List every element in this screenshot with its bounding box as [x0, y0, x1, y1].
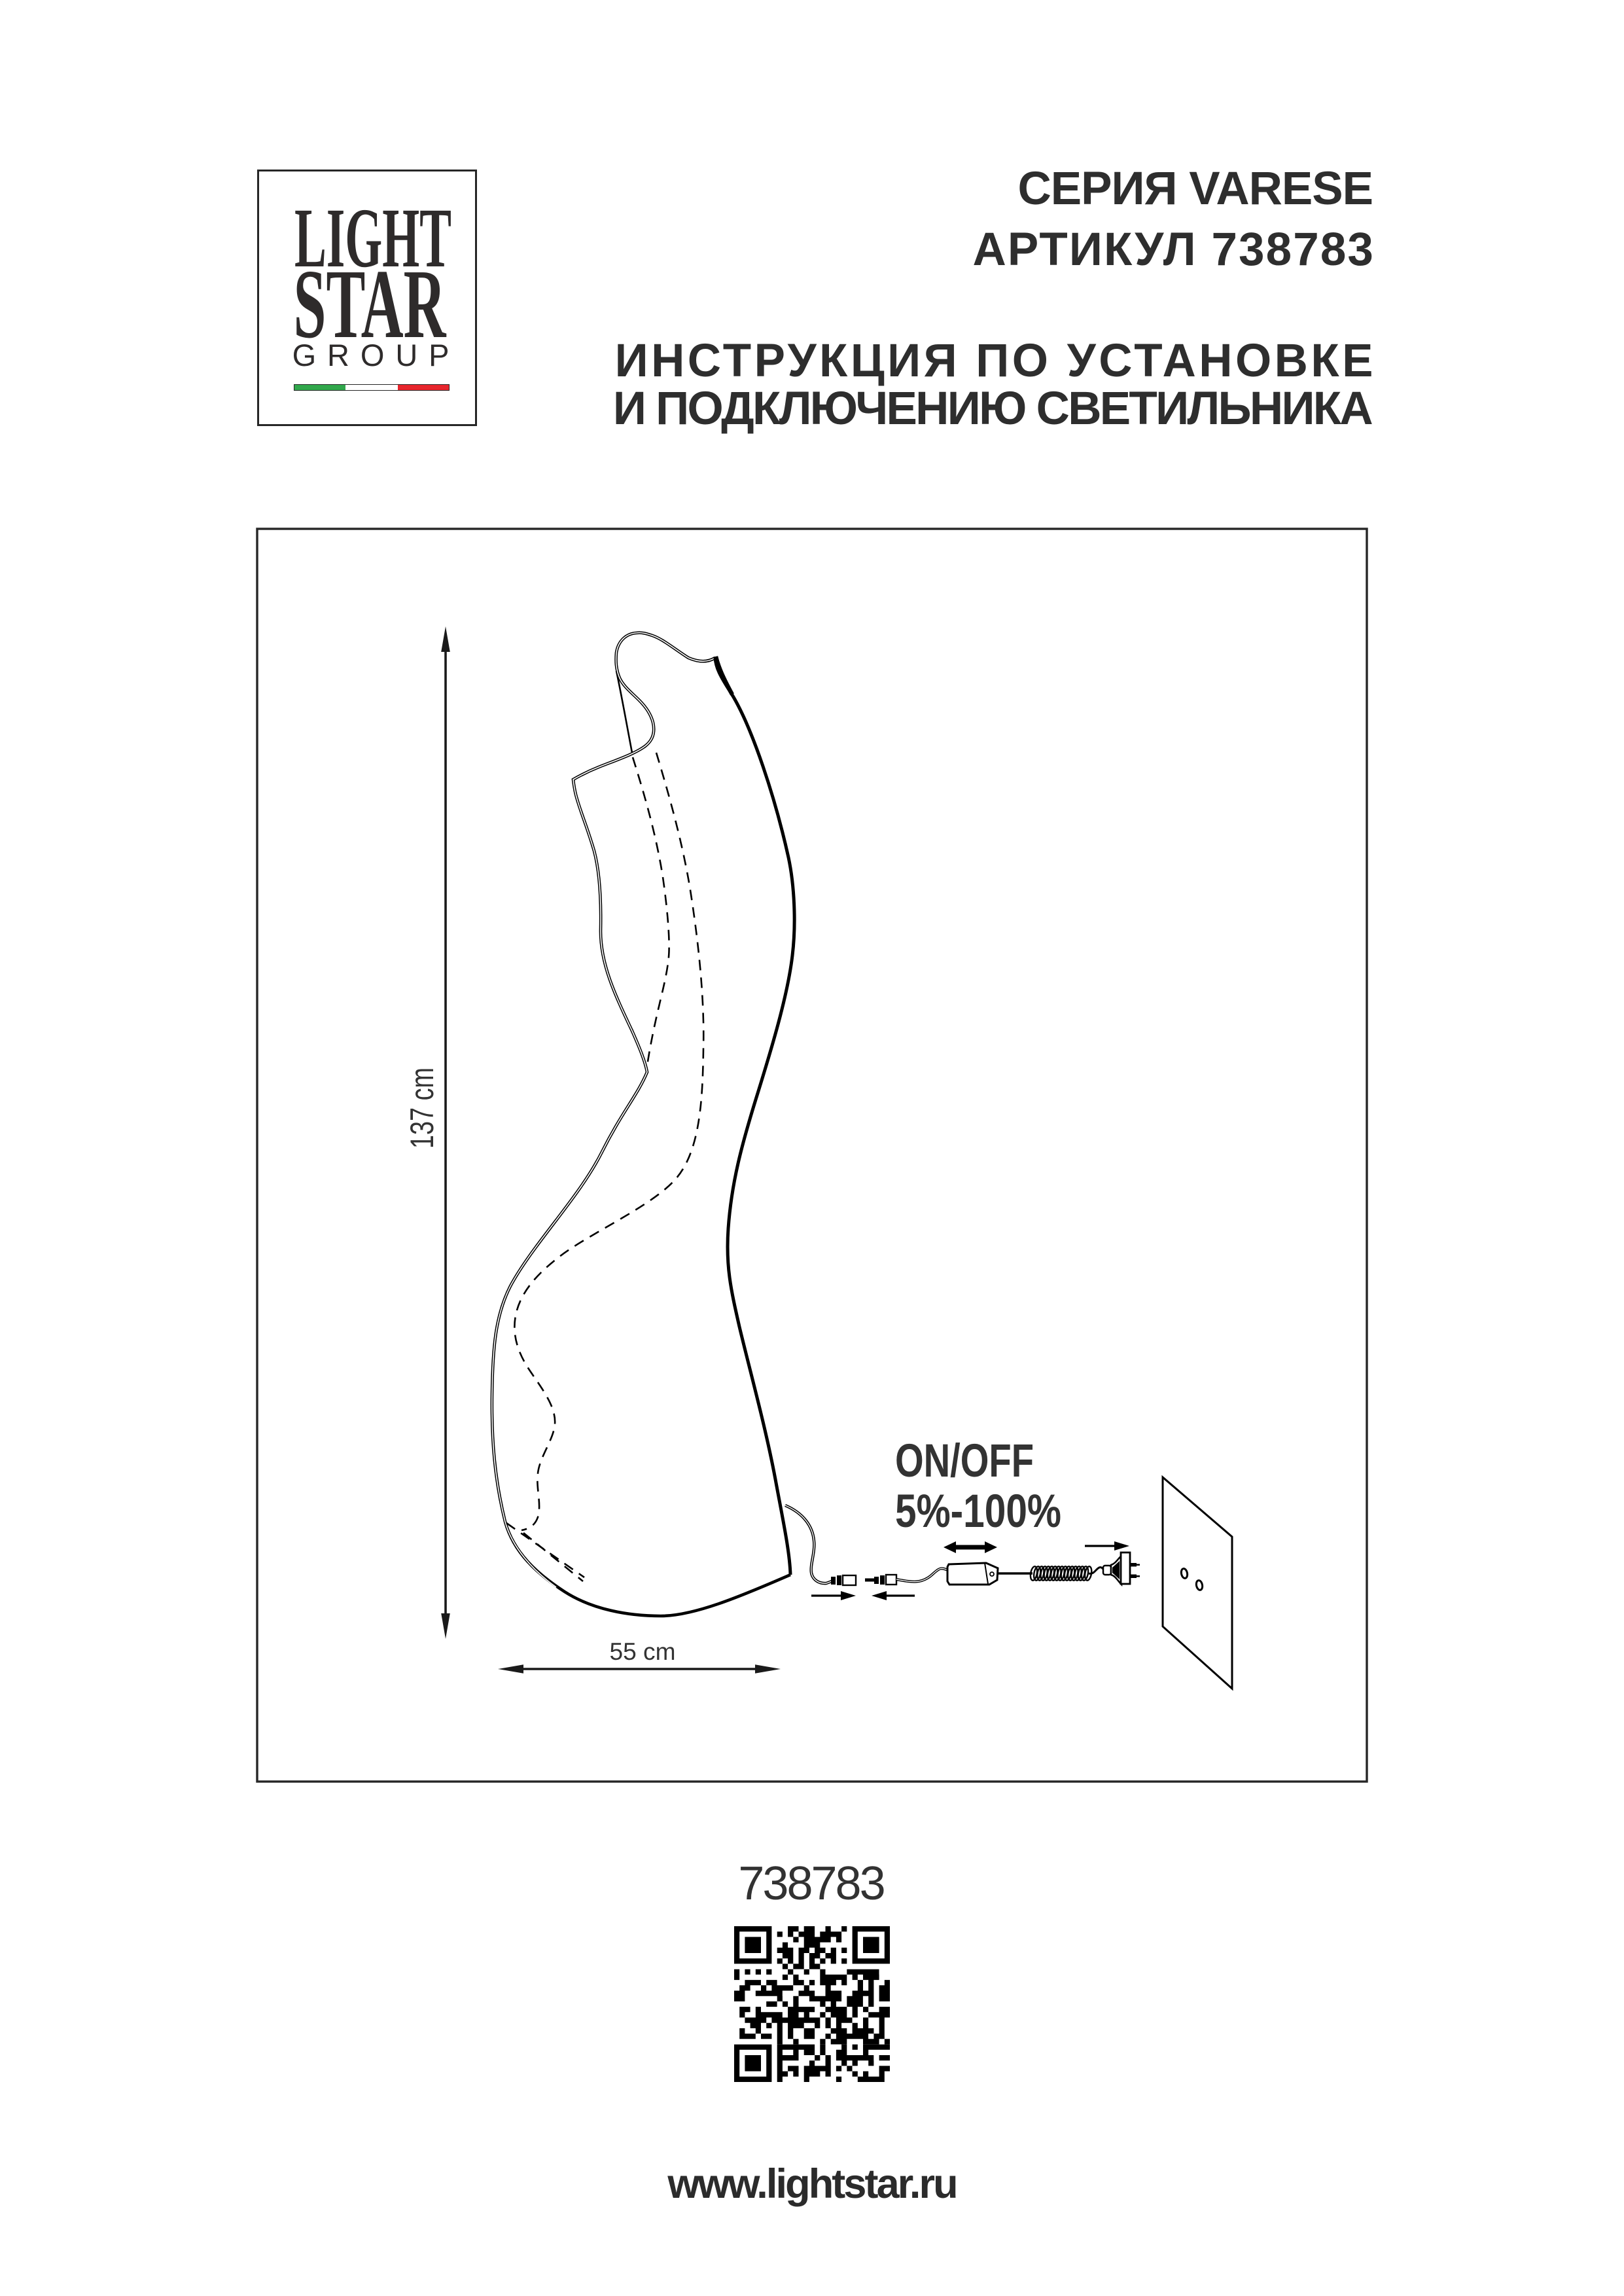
svg-text:ON/OFF: ON/OFF [895, 1435, 1034, 1487]
svg-text:5%-100%: 5%-100% [895, 1486, 1061, 1537]
svg-text:55 cm: 55 cm [610, 1638, 676, 1665]
svg-text:137 cm: 137 cm [404, 1067, 440, 1149]
